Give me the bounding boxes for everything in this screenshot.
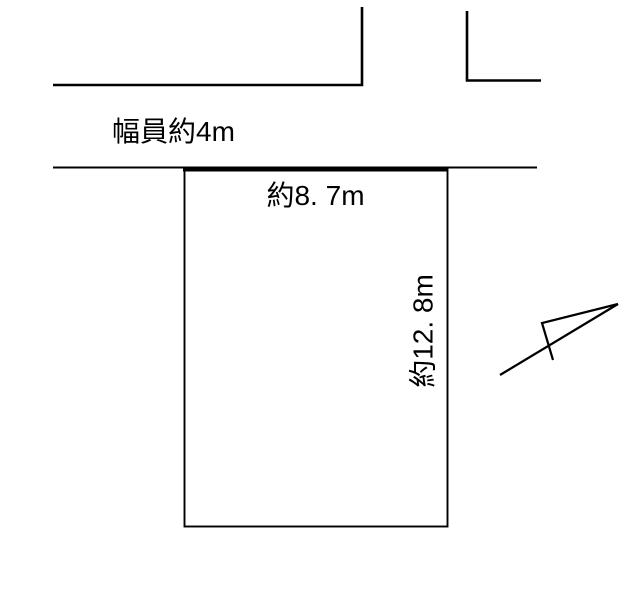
frontage-dimension-label: 約8. 7m (184, 181, 447, 210)
north-arrow-head (542, 304, 618, 360)
road-width-label: 幅員約4m (112, 117, 235, 146)
site-plan-linework (0, 0, 640, 594)
site-plan-diagram: 幅員約4m 約8. 7m 約12. 8m (0, 0, 640, 594)
depth-dimension-label: 約12. 8m (408, 274, 437, 388)
north-arrow-icon (500, 304, 618, 375)
road-edge-upper-left (53, 7, 362, 85)
road-edge-upper-right (467, 11, 541, 81)
north-arrow-shaft (500, 304, 618, 375)
